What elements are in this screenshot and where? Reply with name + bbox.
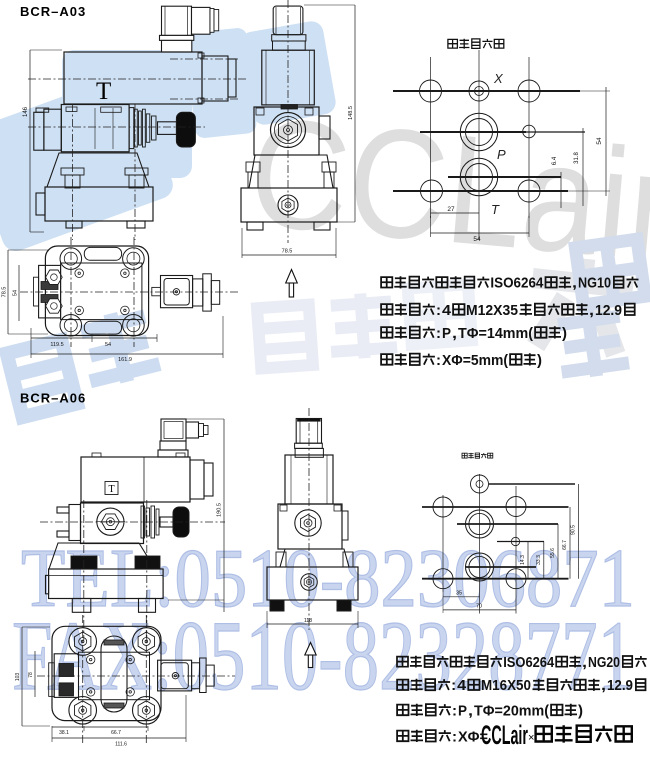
svg-text:M16X50: M16X50 bbox=[481, 678, 531, 694]
svg-text:NG10: NG10 bbox=[578, 276, 611, 292]
svg-text:ISO6264: ISO6264 bbox=[490, 276, 544, 292]
svg-text::: : bbox=[436, 302, 441, 319]
svg-text:P: P bbox=[458, 702, 467, 719]
svg-text:27: 27 bbox=[447, 206, 455, 213]
svg-text:78.5: 78.5 bbox=[282, 249, 293, 255]
svg-text:TΦ=20mm(: TΦ=20mm( bbox=[474, 702, 549, 719]
svg-text:): ) bbox=[562, 325, 567, 342]
svg-text:38.1: 38.1 bbox=[59, 730, 69, 736]
svg-text:190.5: 190.5 bbox=[217, 503, 223, 517]
svg-text:119.5: 119.5 bbox=[50, 342, 63, 348]
svg-text:P: P bbox=[497, 147, 506, 162]
svg-text:66.7: 66.7 bbox=[111, 730, 121, 736]
svg-text:): ) bbox=[578, 702, 583, 719]
svg-text:BCR–A06: BCR–A06 bbox=[20, 391, 86, 406]
svg-text:P: P bbox=[442, 325, 451, 342]
svg-text:70: 70 bbox=[476, 604, 482, 610]
svg-text:54: 54 bbox=[105, 342, 111, 348]
svg-text:T: T bbox=[109, 484, 115, 495]
svg-text:NG20: NG20 bbox=[588, 655, 620, 671]
svg-text:ISO6264: ISO6264 bbox=[503, 655, 554, 671]
svg-text:,: , bbox=[572, 276, 577, 292]
svg-text:66.7: 66.7 bbox=[562, 540, 568, 550]
svg-text:103: 103 bbox=[15, 673, 21, 682]
svg-text:4: 4 bbox=[442, 302, 452, 319]
svg-text:CCLair: CCLair bbox=[481, 720, 528, 750]
svg-text:54: 54 bbox=[596, 137, 603, 145]
svg-text:): ) bbox=[537, 352, 542, 369]
svg-text:12.9: 12.9 bbox=[607, 678, 633, 694]
svg-text:,: , bbox=[601, 678, 606, 694]
svg-text::: : bbox=[452, 728, 457, 745]
svg-text:161.9: 161.9 bbox=[118, 357, 132, 363]
svg-text:78.5: 78.5 bbox=[2, 287, 8, 298]
svg-text:33.3: 33.3 bbox=[536, 555, 542, 565]
svg-text:14.3: 14.3 bbox=[520, 555, 526, 565]
svg-text:T: T bbox=[491, 202, 500, 217]
svg-text::: : bbox=[436, 325, 441, 342]
svg-text:,: , bbox=[452, 325, 457, 342]
svg-text:T: T bbox=[96, 78, 111, 105]
svg-text:,: , bbox=[589, 302, 594, 319]
svg-text:31.8: 31.8 bbox=[574, 152, 580, 164]
svg-text:55.6: 55.6 bbox=[550, 548, 556, 558]
svg-text:X: X bbox=[493, 71, 504, 86]
svg-text:146: 146 bbox=[23, 106, 29, 117]
svg-text:78: 78 bbox=[28, 672, 34, 678]
svg-text:4: 4 bbox=[457, 678, 467, 694]
svg-text:54: 54 bbox=[473, 236, 481, 243]
svg-text:35: 35 bbox=[456, 591, 462, 597]
svg-text:54: 54 bbox=[13, 290, 19, 296]
svg-text::: : bbox=[436, 352, 441, 369]
svg-text:,: , bbox=[582, 655, 587, 671]
svg-text:XΦ=5mm(: XΦ=5mm( bbox=[442, 352, 508, 369]
svg-text:12.9: 12.9 bbox=[595, 302, 622, 319]
svg-text:90.5: 90.5 bbox=[571, 525, 577, 535]
svg-text:BCR–A03: BCR–A03 bbox=[20, 4, 86, 19]
svg-text:M12X35: M12X35 bbox=[466, 302, 518, 319]
svg-text::: : bbox=[451, 678, 456, 694]
svg-text:TΦ=14mm(: TΦ=14mm( bbox=[458, 325, 533, 342]
svg-text:118: 118 bbox=[304, 618, 312, 624]
svg-text:148.5: 148.5 bbox=[348, 106, 354, 120]
svg-text:×: × bbox=[528, 732, 534, 744]
svg-text:6.4: 6.4 bbox=[552, 156, 558, 165]
svg-text:111.6: 111.6 bbox=[115, 742, 127, 748]
svg-text:,: , bbox=[468, 702, 473, 719]
svg-text::: : bbox=[452, 702, 457, 719]
